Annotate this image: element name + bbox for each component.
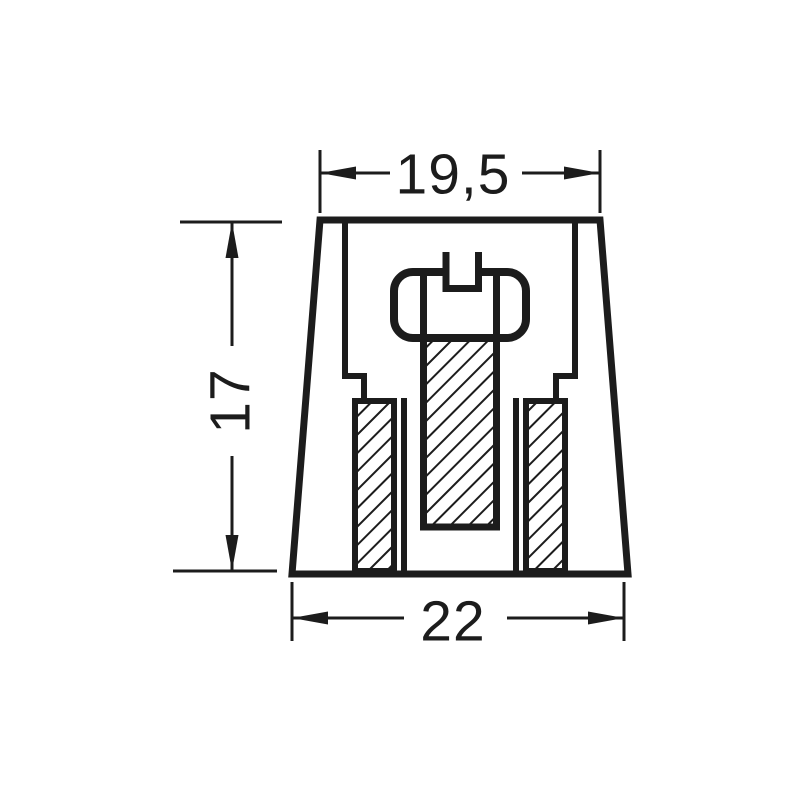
right-insert bbox=[526, 401, 565, 571]
screw-shaft bbox=[424, 338, 497, 527]
dimension-label-bottom-width: 22 bbox=[420, 590, 485, 654]
screw-slot bbox=[446, 252, 479, 289]
dimension-label-height: 17 bbox=[199, 368, 263, 433]
dimension-drawing-canvas: 19,5 17 22 bbox=[0, 0, 800, 800]
left-insert bbox=[355, 401, 394, 571]
dimension-label-top-width: 19,5 bbox=[396, 143, 511, 207]
drawing-page: 19,5 17 22 bbox=[0, 0, 800, 800]
